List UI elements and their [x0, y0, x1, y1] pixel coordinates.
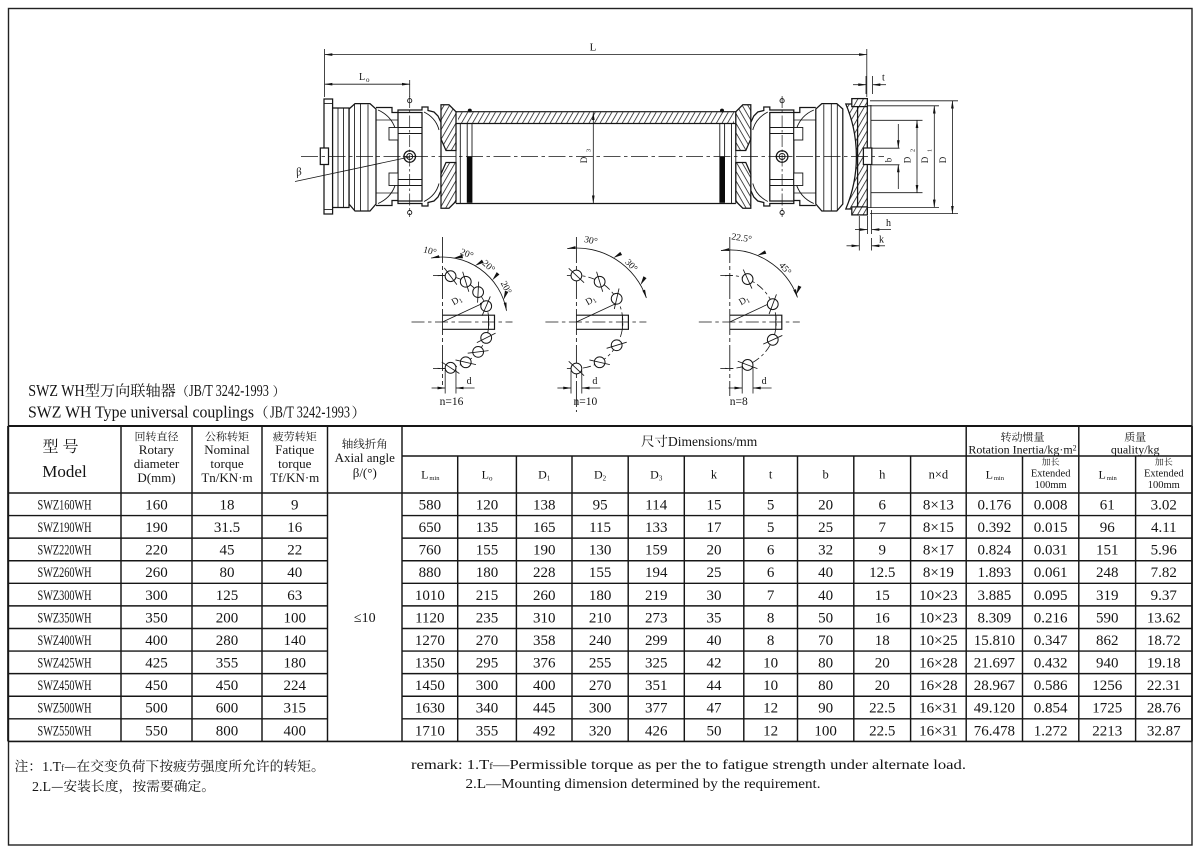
svg-text:255: 255	[589, 656, 612, 672]
svg-text:1350: 1350	[415, 656, 445, 672]
svg-text:18: 18	[220, 497, 235, 513]
svg-text:20: 20	[818, 497, 833, 513]
svg-text:210: 210	[589, 610, 612, 626]
svg-text:160: 160	[145, 497, 168, 513]
svg-text:180: 180	[284, 656, 307, 672]
svg-text:L: L	[421, 468, 428, 482]
svg-text:JB/T 3242-1993: JB/T 3242-1993	[270, 403, 350, 422]
svg-text:1120: 1120	[415, 610, 444, 626]
svg-text:12.5: 12.5	[869, 565, 895, 581]
svg-text:n×d: n×d	[929, 468, 949, 482]
svg-text:D1: D1	[737, 294, 751, 308]
svg-text:151: 151	[1096, 543, 1119, 559]
svg-text:o: o	[366, 76, 370, 84]
svg-text:4.11: 4.11	[1151, 520, 1177, 536]
svg-text:L: L	[359, 72, 365, 83]
svg-text:Rotary: Rotary	[139, 442, 175, 457]
svg-text:130: 130	[589, 543, 612, 559]
svg-text:SWZ260WH: SWZ260WH	[38, 565, 92, 581]
svg-text:180: 180	[476, 565, 499, 581]
svg-text:138: 138	[533, 497, 556, 513]
svg-text:10: 10	[763, 678, 778, 694]
svg-text:45: 45	[220, 543, 235, 559]
svg-text:50: 50	[818, 610, 833, 626]
svg-text:D2: D2	[594, 468, 607, 483]
svg-text:注：1.Tf—在交变负荷下按疲劳强度所允许的转矩。: 注：1.Tf—在交变负荷下按疲劳强度所允许的转矩。	[15, 755, 325, 775]
svg-text:135: 135	[476, 520, 499, 536]
svg-text:型号: 型号	[42, 434, 82, 457]
svg-text:300: 300	[476, 678, 499, 694]
svg-text:k: k	[711, 468, 718, 482]
svg-text:19.18: 19.18	[1147, 656, 1181, 672]
svg-text:D1: D1	[538, 468, 551, 483]
svg-text:n=10: n=10	[574, 396, 598, 408]
svg-text:10×23: 10×23	[919, 588, 957, 604]
svg-text:248: 248	[1096, 565, 1119, 581]
svg-text:18: 18	[875, 633, 890, 649]
svg-text:1450: 1450	[415, 678, 445, 694]
svg-text:96: 96	[1100, 520, 1116, 536]
svg-text:400: 400	[145, 633, 168, 649]
svg-text:30: 30	[707, 588, 722, 604]
svg-text:0.176: 0.176	[977, 497, 1011, 513]
svg-text:SWZ500WH: SWZ500WH	[38, 701, 92, 717]
svg-text:10×25: 10×25	[919, 633, 957, 649]
svg-text:10°: 10°	[422, 244, 438, 258]
svg-text:D1: D1	[450, 294, 464, 308]
svg-text:49.120: 49.120	[974, 701, 1015, 717]
svg-text:0.216: 0.216	[1034, 610, 1068, 626]
svg-text:320: 320	[589, 723, 612, 739]
svg-text:940: 940	[1096, 656, 1119, 672]
svg-text:Nominal: Nominal	[204, 442, 250, 457]
svg-text:22.5: 22.5	[869, 701, 895, 717]
svg-text:β/(°): β/(°)	[353, 465, 377, 480]
svg-text:319: 319	[1096, 588, 1119, 604]
svg-text:8: 8	[767, 610, 775, 626]
svg-text:≤10: ≤10	[354, 611, 376, 626]
svg-text:15.810: 15.810	[974, 633, 1015, 649]
svg-text:0.347: 0.347	[1034, 633, 1068, 649]
svg-text:215: 215	[476, 588, 499, 604]
svg-text:12: 12	[763, 723, 778, 739]
svg-text:SWZ550WH: SWZ550WH	[38, 723, 92, 739]
svg-text:3.02: 3.02	[1151, 497, 1177, 513]
svg-text:SWZ190WH: SWZ190WH	[38, 520, 92, 536]
svg-text:min: min	[429, 475, 440, 482]
svg-text:d: d	[592, 376, 597, 387]
svg-text:80: 80	[818, 656, 833, 672]
svg-text:0.392: 0.392	[977, 520, 1011, 536]
svg-text:（: （	[255, 403, 269, 423]
svg-text:SWZ160WH: SWZ160WH	[38, 497, 92, 513]
svg-text:70: 70	[818, 633, 833, 649]
svg-text:1725: 1725	[1092, 701, 1122, 717]
svg-text:6: 6	[878, 497, 886, 513]
svg-text:b: b	[884, 157, 894, 162]
svg-text:7.82: 7.82	[1151, 565, 1177, 581]
svg-text:180: 180	[589, 588, 612, 604]
svg-text:SWZ400WH: SWZ400WH	[38, 633, 92, 649]
svg-text:40: 40	[818, 565, 833, 581]
svg-text:2213: 2213	[1092, 723, 1122, 739]
svg-text:355: 355	[476, 723, 499, 739]
svg-text:JB/T 3242-1993: JB/T 3242-1993	[189, 381, 269, 400]
svg-text:SWZ450WH: SWZ450WH	[38, 678, 92, 694]
svg-text:90: 90	[818, 701, 833, 717]
svg-text:Lo: Lo	[482, 468, 493, 483]
svg-text:3.885: 3.885	[977, 588, 1011, 604]
svg-text:140: 140	[284, 633, 307, 649]
svg-text:224: 224	[284, 678, 307, 694]
svg-text:quality/kg: quality/kg	[1111, 443, 1160, 457]
svg-text:0.824: 0.824	[977, 543, 1011, 559]
svg-text:351: 351	[645, 678, 668, 694]
svg-text:0.061: 0.061	[1034, 565, 1068, 581]
svg-text:）: ）	[352, 403, 366, 423]
svg-text:80: 80	[818, 678, 833, 694]
svg-text:h: h	[886, 218, 891, 229]
svg-text:270: 270	[589, 678, 612, 694]
svg-text:尺寸: 尺寸	[641, 430, 668, 450]
svg-text:t: t	[769, 468, 773, 482]
svg-text:377: 377	[645, 701, 668, 717]
svg-text:16×28: 16×28	[919, 656, 957, 672]
svg-text:0.008: 0.008	[1034, 497, 1068, 513]
svg-text:Dimensions/mm: Dimensions/mm	[668, 434, 758, 449]
svg-text:D: D	[938, 156, 948, 163]
svg-text:D3: D3	[650, 468, 663, 483]
svg-text:9.37: 9.37	[1151, 588, 1178, 604]
svg-text:Fatique: Fatique	[275, 442, 314, 457]
svg-text:7: 7	[878, 520, 886, 536]
svg-text:SWZ220WH: SWZ220WH	[38, 543, 92, 559]
svg-text:16×28: 16×28	[919, 678, 957, 694]
svg-text:273: 273	[645, 610, 668, 626]
svg-text:D: D	[579, 156, 589, 163]
svg-text:76.478: 76.478	[974, 723, 1015, 739]
svg-text:Model: Model	[42, 462, 87, 481]
svg-text:260: 260	[145, 565, 168, 581]
svg-text:D: D	[903, 156, 913, 163]
svg-text:35: 35	[707, 610, 722, 626]
svg-text:L: L	[590, 42, 597, 54]
svg-text:型万向联轴器: 型万向联轴器	[85, 380, 176, 401]
svg-text:114: 114	[645, 497, 667, 513]
svg-text:Extended: Extended	[1144, 469, 1184, 480]
svg-text:Extended: Extended	[1031, 469, 1071, 480]
svg-text:25: 25	[818, 520, 833, 536]
svg-text:8.309: 8.309	[977, 610, 1011, 626]
svg-text:80: 80	[220, 565, 235, 581]
svg-text:32: 32	[818, 543, 833, 559]
svg-text:32.87: 32.87	[1147, 723, 1181, 739]
svg-text:L: L	[1099, 468, 1106, 482]
svg-text:376: 376	[533, 656, 556, 672]
svg-text:15: 15	[707, 497, 722, 513]
svg-text:22.31: 22.31	[1147, 678, 1181, 694]
svg-text:2: 2	[909, 149, 916, 152]
svg-text:8: 8	[767, 633, 775, 649]
svg-text:240: 240	[589, 633, 612, 649]
svg-text:340: 340	[476, 701, 499, 717]
svg-text:Axial angle: Axial angle	[335, 450, 396, 465]
svg-text:5.96: 5.96	[1151, 543, 1178, 559]
svg-text:5: 5	[767, 520, 775, 536]
svg-text:125: 125	[216, 588, 239, 604]
svg-text:40: 40	[287, 565, 302, 581]
svg-text:10: 10	[763, 656, 778, 672]
svg-text:31.5: 31.5	[214, 520, 240, 536]
svg-text:SWZ300WH: SWZ300WH	[38, 588, 92, 604]
svg-text:8×19: 8×19	[923, 565, 954, 581]
svg-text:159: 159	[645, 543, 668, 559]
svg-text:21.697: 21.697	[974, 656, 1016, 672]
svg-text:h: h	[879, 468, 886, 482]
svg-text:100: 100	[284, 610, 307, 626]
svg-text:torque: torque	[210, 456, 243, 471]
svg-text:22.5: 22.5	[869, 723, 895, 739]
svg-text:D: D	[920, 156, 930, 163]
svg-text:20°: 20°	[498, 279, 514, 296]
svg-text:6: 6	[767, 543, 775, 559]
svg-text:min: min	[1107, 475, 1118, 482]
svg-text:D1: D1	[584, 294, 598, 308]
svg-text:1270: 1270	[415, 633, 445, 649]
svg-text:diameter: diameter	[134, 456, 180, 471]
svg-text:400: 400	[533, 678, 556, 694]
svg-text:133: 133	[645, 520, 668, 536]
svg-text:450: 450	[216, 678, 239, 694]
svg-text:β: β	[294, 166, 303, 179]
svg-text:115: 115	[589, 520, 611, 536]
svg-text:k: k	[879, 235, 884, 246]
svg-text:1710: 1710	[415, 723, 445, 739]
svg-text:20: 20	[875, 678, 890, 694]
svg-text:165: 165	[533, 520, 556, 536]
svg-text:425: 425	[145, 656, 168, 672]
svg-text:300: 300	[589, 701, 612, 717]
svg-text:SWZ WH Type universal coupling: SWZ WH Type universal couplings	[28, 403, 254, 422]
svg-text:15: 15	[875, 588, 890, 604]
svg-text:194: 194	[645, 565, 668, 581]
svg-text:358: 358	[533, 633, 556, 649]
svg-text:16×31: 16×31	[919, 723, 957, 739]
svg-text:20: 20	[875, 656, 890, 672]
svg-text:228: 228	[533, 565, 556, 581]
svg-text:SWZ WH: SWZ WH	[28, 381, 84, 400]
svg-text:16: 16	[287, 520, 303, 536]
svg-text:190: 190	[533, 543, 556, 559]
svg-text:）: ）	[273, 381, 286, 400]
svg-text:550: 550	[145, 723, 168, 739]
svg-text:d: d	[467, 376, 472, 387]
svg-text:n=16: n=16	[440, 396, 464, 408]
svg-text:350: 350	[145, 610, 168, 626]
svg-text:9: 9	[291, 497, 299, 513]
svg-text:600: 600	[216, 701, 239, 717]
svg-text:17: 17	[707, 520, 723, 536]
svg-text:155: 155	[476, 543, 499, 559]
svg-text:25: 25	[707, 565, 722, 581]
svg-text:8×15: 8×15	[923, 520, 954, 536]
svg-text:310: 310	[533, 610, 556, 626]
svg-text:40: 40	[707, 633, 722, 649]
svg-text:L: L	[986, 468, 993, 482]
svg-text:（: （	[176, 381, 189, 400]
svg-text:n=8: n=8	[730, 396, 748, 408]
svg-text:13.62: 13.62	[1147, 610, 1181, 626]
svg-text:7: 7	[767, 588, 775, 604]
svg-text:SWZ350WH: SWZ350WH	[38, 610, 92, 626]
svg-text:280: 280	[216, 633, 239, 649]
svg-text:1010: 1010	[415, 588, 445, 604]
svg-text:加长: 加长	[1155, 455, 1173, 468]
svg-text:355: 355	[216, 656, 239, 672]
svg-text:100mm: 100mm	[1035, 480, 1067, 491]
svg-text:6: 6	[767, 565, 775, 581]
svg-text:235: 235	[476, 610, 499, 626]
svg-text:492: 492	[533, 723, 556, 739]
svg-text:120: 120	[476, 497, 499, 513]
svg-text:100: 100	[814, 723, 837, 739]
svg-text:0.586: 0.586	[1034, 678, 1068, 694]
svg-text:200: 200	[216, 610, 239, 626]
svg-text:40: 40	[818, 588, 833, 604]
svg-text:18.72: 18.72	[1147, 633, 1181, 649]
svg-text:1.893: 1.893	[977, 565, 1011, 581]
svg-text:min: min	[994, 475, 1005, 482]
svg-text:28.76: 28.76	[1147, 701, 1181, 717]
svg-text:190: 190	[145, 520, 168, 536]
svg-text:remark: 1.Tf—Permissible torqu: remark: 1.Tf—Permissible torque as per t…	[411, 758, 966, 773]
svg-text:0.015: 0.015	[1034, 520, 1068, 536]
svg-text:219: 219	[645, 588, 668, 604]
svg-text:50: 50	[707, 723, 722, 739]
svg-text:45°: 45°	[776, 260, 793, 277]
svg-text:220: 220	[145, 543, 168, 559]
svg-text:315: 315	[284, 701, 307, 717]
svg-text:445: 445	[533, 701, 556, 717]
svg-text:299: 299	[645, 633, 668, 649]
svg-text:t: t	[882, 73, 885, 84]
svg-text:100mm: 100mm	[1148, 480, 1180, 491]
svg-text:22: 22	[287, 543, 302, 559]
svg-text:20: 20	[707, 543, 722, 559]
svg-text:22.5°: 22.5°	[731, 231, 753, 245]
svg-text:2.L—安装长度，按需要确定。: 2.L—安装长度，按需要确定。	[32, 775, 215, 795]
svg-text:862: 862	[1096, 633, 1119, 649]
svg-text:295: 295	[476, 656, 499, 672]
svg-text:b: b	[823, 468, 829, 482]
svg-text:0.432: 0.432	[1034, 656, 1068, 672]
svg-text:加长: 加长	[1042, 455, 1060, 468]
svg-text:10×23: 10×23	[919, 610, 957, 626]
svg-text:760: 760	[419, 543, 442, 559]
svg-text:16: 16	[875, 610, 891, 626]
svg-text:270: 270	[476, 633, 499, 649]
svg-text:44: 44	[707, 678, 723, 694]
svg-text:Tn/KN·m: Tn/KN·m	[201, 470, 252, 485]
svg-text:260: 260	[533, 588, 556, 604]
svg-text:63: 63	[287, 588, 302, 604]
svg-text:61: 61	[1100, 497, 1115, 513]
svg-text:400: 400	[284, 723, 307, 739]
svg-text:2.L—Mounting dimension determi: 2.L—Mounting dimension determined by the…	[466, 777, 821, 792]
svg-text:D(mm): D(mm)	[137, 470, 175, 485]
svg-text:SWZ425WH: SWZ425WH	[38, 656, 92, 672]
svg-text:580: 580	[419, 497, 442, 513]
svg-text:155: 155	[589, 565, 612, 581]
svg-text:d: d	[762, 376, 767, 387]
svg-text:0.031: 0.031	[1034, 543, 1068, 559]
svg-text:1.272: 1.272	[1034, 723, 1068, 739]
svg-text:426: 426	[645, 723, 668, 739]
svg-text:42: 42	[707, 656, 722, 672]
svg-text:8×17: 8×17	[923, 543, 954, 559]
svg-text:12: 12	[763, 701, 778, 717]
svg-text:650: 650	[419, 520, 442, 536]
svg-text:325: 325	[645, 656, 668, 672]
svg-text:1256: 1256	[1092, 678, 1123, 694]
svg-text:1630: 1630	[415, 701, 445, 717]
svg-text:16×31: 16×31	[919, 701, 957, 717]
svg-text:300: 300	[145, 588, 168, 604]
svg-text:Tf/KN·m: Tf/KN·m	[270, 470, 319, 485]
svg-text:800: 800	[216, 723, 239, 739]
svg-text:880: 880	[419, 565, 442, 581]
svg-text:8×13: 8×13	[923, 497, 954, 513]
svg-text:590: 590	[1096, 610, 1119, 626]
svg-text:500: 500	[145, 701, 168, 717]
svg-text:0.854: 0.854	[1034, 701, 1068, 717]
svg-text:5: 5	[767, 497, 775, 513]
svg-text:9: 9	[878, 543, 886, 559]
svg-text:1: 1	[927, 149, 934, 152]
svg-text:3: 3	[586, 149, 593, 152]
svg-text:Rotation Inertia/kg·m2: Rotation Inertia/kg·m2	[968, 443, 1076, 457]
svg-text:torque: torque	[278, 456, 311, 471]
svg-text:47: 47	[707, 701, 723, 717]
svg-text:0.095: 0.095	[1034, 588, 1068, 604]
svg-text:30°: 30°	[622, 257, 639, 274]
svg-text:28.967: 28.967	[974, 678, 1016, 694]
svg-text:450: 450	[145, 678, 168, 694]
svg-text:30°: 30°	[583, 234, 598, 248]
svg-text:95: 95	[593, 497, 608, 513]
